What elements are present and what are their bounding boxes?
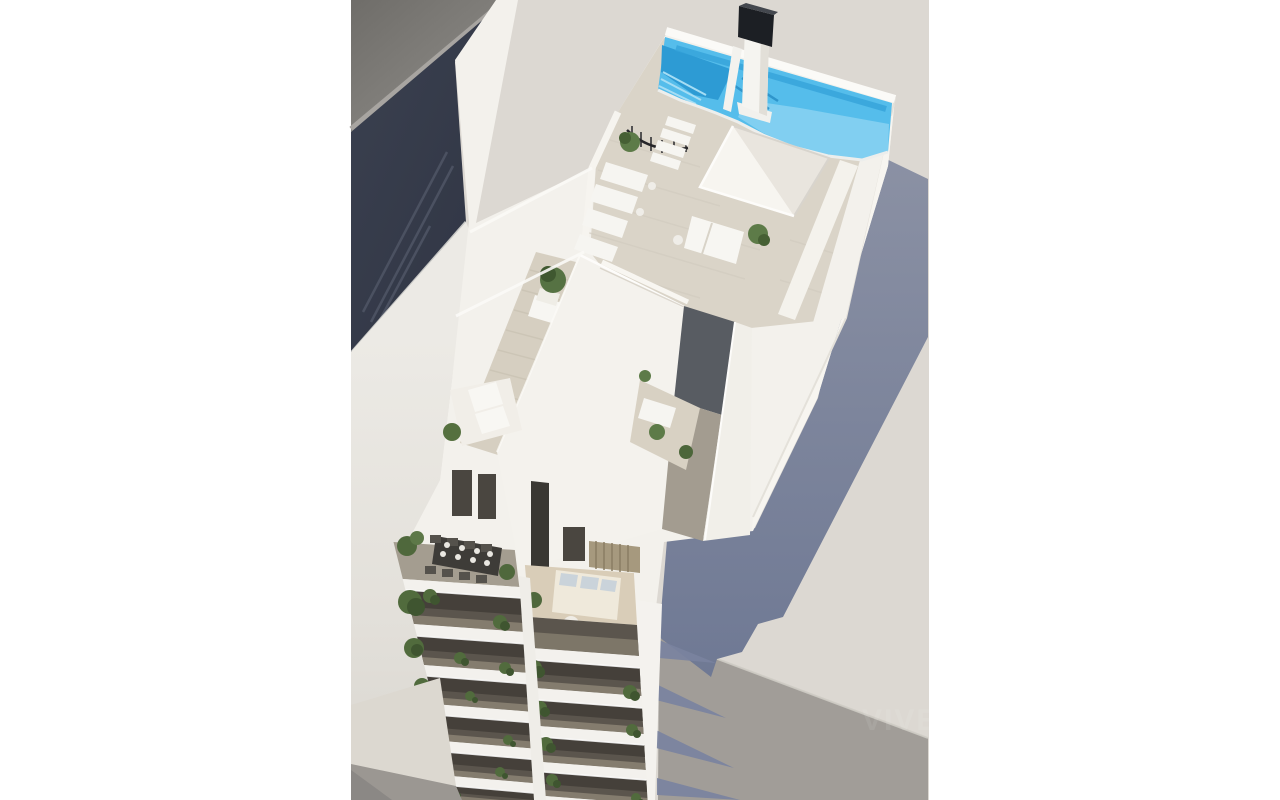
svg-text:VIVE: VIVE [862, 704, 938, 737]
